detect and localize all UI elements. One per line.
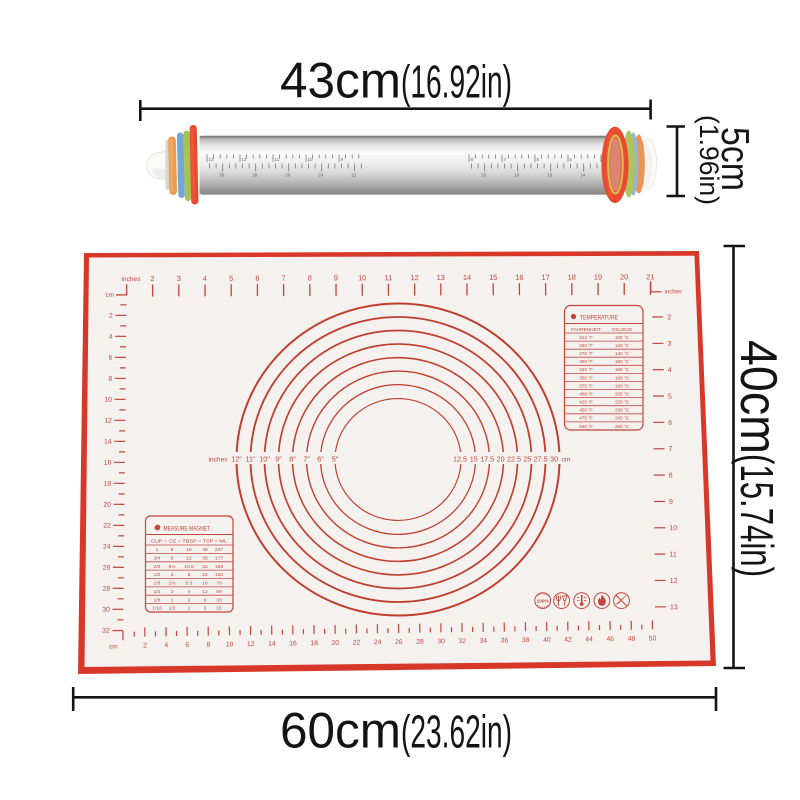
svg-text:6: 6 [109, 355, 113, 362]
svg-text:21: 21 [646, 272, 654, 281]
svg-text:4: 4 [171, 572, 174, 578]
svg-text:165 °C: 165 °C [615, 367, 630, 372]
svg-text:237: 237 [215, 547, 223, 553]
svg-text:2: 2 [143, 642, 147, 649]
svg-text:8: 8 [669, 472, 673, 479]
svg-text:32: 32 [458, 638, 466, 645]
svg-text:12: 12 [410, 273, 418, 282]
svg-text:11": 11" [245, 455, 255, 464]
svg-text:26: 26 [103, 565, 111, 572]
svg-text:27.5: 27.5 [534, 455, 548, 464]
svg-text:(1.96in): (1.96in) [694, 115, 724, 205]
svg-text:13: 13 [670, 604, 678, 611]
svg-text:cm: cm [561, 457, 570, 464]
svg-text:16: 16 [202, 581, 208, 587]
svg-text:24: 24 [103, 544, 111, 551]
svg-text:11: 11 [670, 551, 677, 558]
svg-text:24: 24 [202, 572, 208, 578]
svg-text:4: 4 [109, 334, 113, 341]
svg-text:cm: cm [105, 292, 114, 299]
svg-text:9: 9 [669, 499, 673, 506]
svg-text:12: 12 [104, 418, 112, 425]
svg-text:1: 1 [171, 597, 174, 603]
svg-text:inches: inches [664, 289, 681, 295]
svg-text:475 °F: 475 °F [579, 416, 593, 421]
svg-text:15: 15 [489, 273, 497, 282]
svg-text:7: 7 [504, 157, 507, 162]
svg-text:100%: 100% [537, 598, 550, 604]
svg-text:42: 42 [564, 637, 572, 644]
svg-text:205 °C: 205 °C [615, 392, 630, 397]
svg-text:3: 3 [667, 341, 671, 348]
svg-text:38: 38 [522, 637, 530, 644]
svg-text:3/4: 3/4 [154, 556, 161, 562]
svg-text:425 °F: 425 °F [579, 400, 593, 405]
svg-text:36: 36 [202, 556, 208, 562]
svg-text:11: 11 [275, 157, 280, 162]
svg-text:150 °C: 150 °C [615, 359, 630, 364]
svg-text:5: 5 [229, 274, 233, 283]
svg-text:3: 3 [177, 274, 181, 283]
svg-text:inches: inches [208, 457, 228, 464]
svg-text:20: 20 [331, 640, 339, 647]
svg-text:10: 10 [669, 525, 677, 532]
svg-text:7: 7 [282, 274, 286, 283]
svg-text:15: 15 [216, 606, 222, 612]
svg-text:14: 14 [104, 439, 112, 446]
svg-text:5": 5" [332, 455, 339, 464]
svg-text:6: 6 [668, 420, 672, 427]
svg-text:40cm(15.74in): 40cm(15.74in) [729, 340, 787, 577]
svg-text:8": 8" [289, 455, 296, 464]
svg-text:260 °C: 260 °C [615, 424, 630, 429]
svg-text:26: 26 [285, 173, 291, 178]
svg-text:17: 17 [541, 273, 549, 282]
svg-text:17.5: 17.5 [480, 455, 494, 464]
svg-text:20: 20 [481, 173, 487, 178]
svg-text:8: 8 [206, 642, 210, 649]
svg-text:6: 6 [537, 157, 540, 162]
svg-text:7": 7" [303, 455, 310, 464]
svg-text:40: 40 [543, 637, 551, 644]
svg-text:16: 16 [515, 273, 523, 282]
svg-text:2: 2 [667, 314, 671, 321]
svg-text:4: 4 [164, 642, 168, 649]
svg-text:6: 6 [204, 597, 207, 603]
svg-text:60cm(23.62in): 60cm(23.62in) [280, 703, 512, 759]
svg-text:6: 6 [185, 642, 189, 649]
svg-text:5.3: 5.3 [186, 581, 193, 587]
svg-text:34: 34 [480, 638, 488, 645]
svg-text:10: 10 [104, 397, 112, 404]
svg-text:350 °F: 350 °F [579, 375, 593, 380]
svg-text:12: 12 [186, 556, 192, 562]
svg-text:230 °C: 230 °C [615, 408, 630, 413]
svg-text:28: 28 [252, 173, 258, 178]
svg-text:4: 4 [668, 367, 672, 374]
svg-text:500 °F: 500 °F [579, 424, 593, 429]
svg-text:12: 12 [242, 157, 248, 162]
svg-text:22: 22 [353, 639, 361, 646]
svg-text:2: 2 [151, 274, 155, 283]
svg-text:6: 6 [171, 556, 174, 562]
svg-text:8: 8 [471, 157, 474, 162]
svg-text:30: 30 [550, 455, 558, 464]
svg-text:30: 30 [437, 638, 445, 645]
svg-text:3: 3 [204, 606, 207, 612]
svg-text:48: 48 [202, 547, 208, 553]
svg-text:12.5: 12.5 [453, 455, 467, 464]
svg-text:18: 18 [104, 481, 112, 488]
svg-text:4: 4 [203, 274, 207, 283]
svg-text:44: 44 [585, 636, 593, 643]
svg-text:36: 36 [501, 637, 509, 644]
svg-text:14: 14 [580, 173, 586, 178]
svg-text:18: 18 [568, 273, 576, 282]
svg-text:375 °F: 375 °F [579, 383, 593, 388]
svg-text:220 °C: 220 °C [615, 400, 630, 405]
svg-text:1/2: 1/2 [169, 606, 176, 612]
svg-text:8: 8 [171, 547, 174, 553]
svg-text:16: 16 [547, 173, 553, 178]
svg-text:24: 24 [318, 173, 324, 178]
svg-text:6: 6 [255, 274, 259, 283]
svg-text:180 °C: 180 °C [615, 375, 630, 380]
svg-text:450 °F: 450 °F [579, 408, 593, 413]
svg-text:9: 9 [334, 273, 338, 282]
svg-text:140 °C: 140 °C [615, 351, 630, 356]
svg-text:FAHRENHEIT: FAHRENHEIT [571, 327, 601, 332]
svg-text:30: 30 [216, 597, 222, 603]
svg-text:12": 12" [231, 455, 242, 464]
svg-text:11: 11 [385, 273, 393, 282]
svg-text:6": 6" [317, 455, 324, 464]
svg-text:1/3: 1/3 [154, 581, 161, 587]
svg-text:59: 59 [216, 589, 222, 595]
svg-text:16: 16 [186, 547, 192, 553]
svg-text:20: 20 [620, 272, 628, 281]
svg-text:1: 1 [188, 606, 191, 612]
svg-text:1: 1 [156, 547, 159, 553]
svg-text:1/8: 1/8 [154, 597, 161, 603]
svg-text:18: 18 [310, 640, 318, 647]
svg-text:48: 48 [628, 636, 636, 643]
svg-text:14: 14 [268, 641, 276, 648]
svg-text:inches: inches [121, 276, 141, 283]
svg-text:16: 16 [104, 460, 112, 467]
svg-text:22: 22 [103, 523, 111, 530]
svg-text:325 °F: 325 °F [579, 367, 593, 372]
svg-text:300 °F: 300 °F [579, 359, 593, 364]
svg-text:19: 19 [594, 273, 602, 282]
svg-text:118: 118 [215, 572, 223, 578]
svg-text:1/4: 1/4 [154, 589, 161, 595]
svg-text:15: 15 [470, 455, 478, 464]
svg-text:2: 2 [171, 589, 174, 595]
svg-text:5⅓: 5⅓ [169, 564, 176, 570]
svg-text:9": 9" [275, 455, 282, 464]
svg-text:32: 32 [102, 628, 110, 635]
svg-text:1/16: 1/16 [152, 606, 162, 612]
svg-text:22: 22 [351, 173, 357, 178]
svg-text:7: 7 [668, 446, 672, 453]
svg-text:12: 12 [202, 589, 208, 595]
svg-text:4: 4 [188, 589, 191, 595]
svg-text:2⅔: 2⅔ [169, 581, 176, 587]
svg-text:22.5: 22.5 [507, 455, 521, 464]
svg-text:28: 28 [416, 639, 424, 646]
svg-text:18: 18 [514, 173, 520, 178]
svg-text:5: 5 [668, 393, 672, 400]
svg-text:10: 10 [226, 641, 234, 648]
svg-text:CELSIUS: CELSIUS [612, 327, 632, 332]
svg-text:10": 10" [259, 455, 270, 464]
svg-text:1/2: 1/2 [154, 572, 161, 578]
svg-text:46: 46 [606, 636, 614, 643]
svg-text:32: 32 [202, 564, 208, 570]
svg-text:20: 20 [497, 455, 505, 464]
svg-text:12: 12 [670, 578, 678, 585]
svg-text:177: 177 [215, 556, 223, 562]
svg-text:20: 20 [103, 502, 111, 509]
svg-text:245 °C: 245 °C [615, 416, 630, 421]
svg-text:MEASURE MAGNET: MEASURE MAGNET [164, 526, 211, 533]
svg-text:2/3: 2/3 [154, 564, 161, 570]
svg-text:10: 10 [358, 273, 366, 282]
svg-text:2: 2 [109, 313, 113, 320]
svg-text:79: 79 [216, 581, 222, 587]
svg-text:14: 14 [463, 273, 471, 282]
svg-text:24: 24 [374, 639, 382, 646]
svg-text:13: 13 [437, 273, 445, 282]
svg-text:16: 16 [289, 640, 297, 647]
svg-text:8: 8 [108, 376, 112, 383]
svg-text:100 °C: 100 °C [615, 335, 630, 340]
svg-text:212 °F: 212 °F [579, 335, 593, 340]
svg-text:275 °F: 275 °F [579, 351, 593, 356]
svg-text:43cm(16.92in): 43cm(16.92in) [280, 53, 512, 109]
svg-text:190 °C: 190 °C [615, 383, 630, 388]
svg-text:26: 26 [395, 639, 403, 646]
svg-text:50: 50 [649, 635, 657, 642]
svg-text:25: 25 [523, 455, 531, 464]
svg-text:30: 30 [219, 173, 225, 178]
svg-text:400 °F: 400 °F [579, 392, 593, 397]
svg-text:10.6: 10.6 [184, 564, 194, 570]
svg-text:28: 28 [103, 586, 111, 593]
svg-text:12: 12 [247, 641, 255, 648]
svg-text:8: 8 [308, 273, 312, 282]
svg-text:CUP = OZ = TBSP = TSP = ML: CUP = OZ = TBSP = TSP = ML [151, 539, 227, 545]
svg-text:9: 9 [341, 157, 344, 162]
svg-text:TEMPERATURE: TEMPERATURE [580, 315, 618, 322]
svg-text:8: 8 [188, 572, 191, 578]
svg-text:120 °C: 120 °C [615, 343, 630, 348]
svg-text:5: 5 [570, 157, 573, 162]
svg-text:158: 158 [215, 564, 223, 570]
svg-text:cm: cm [109, 644, 118, 651]
svg-text:10: 10 [308, 157, 314, 162]
svg-text:13: 13 [209, 157, 215, 162]
svg-text:250 °F: 250 °F [579, 343, 593, 348]
svg-text:30: 30 [102, 607, 110, 614]
svg-text:2: 2 [188, 597, 191, 603]
